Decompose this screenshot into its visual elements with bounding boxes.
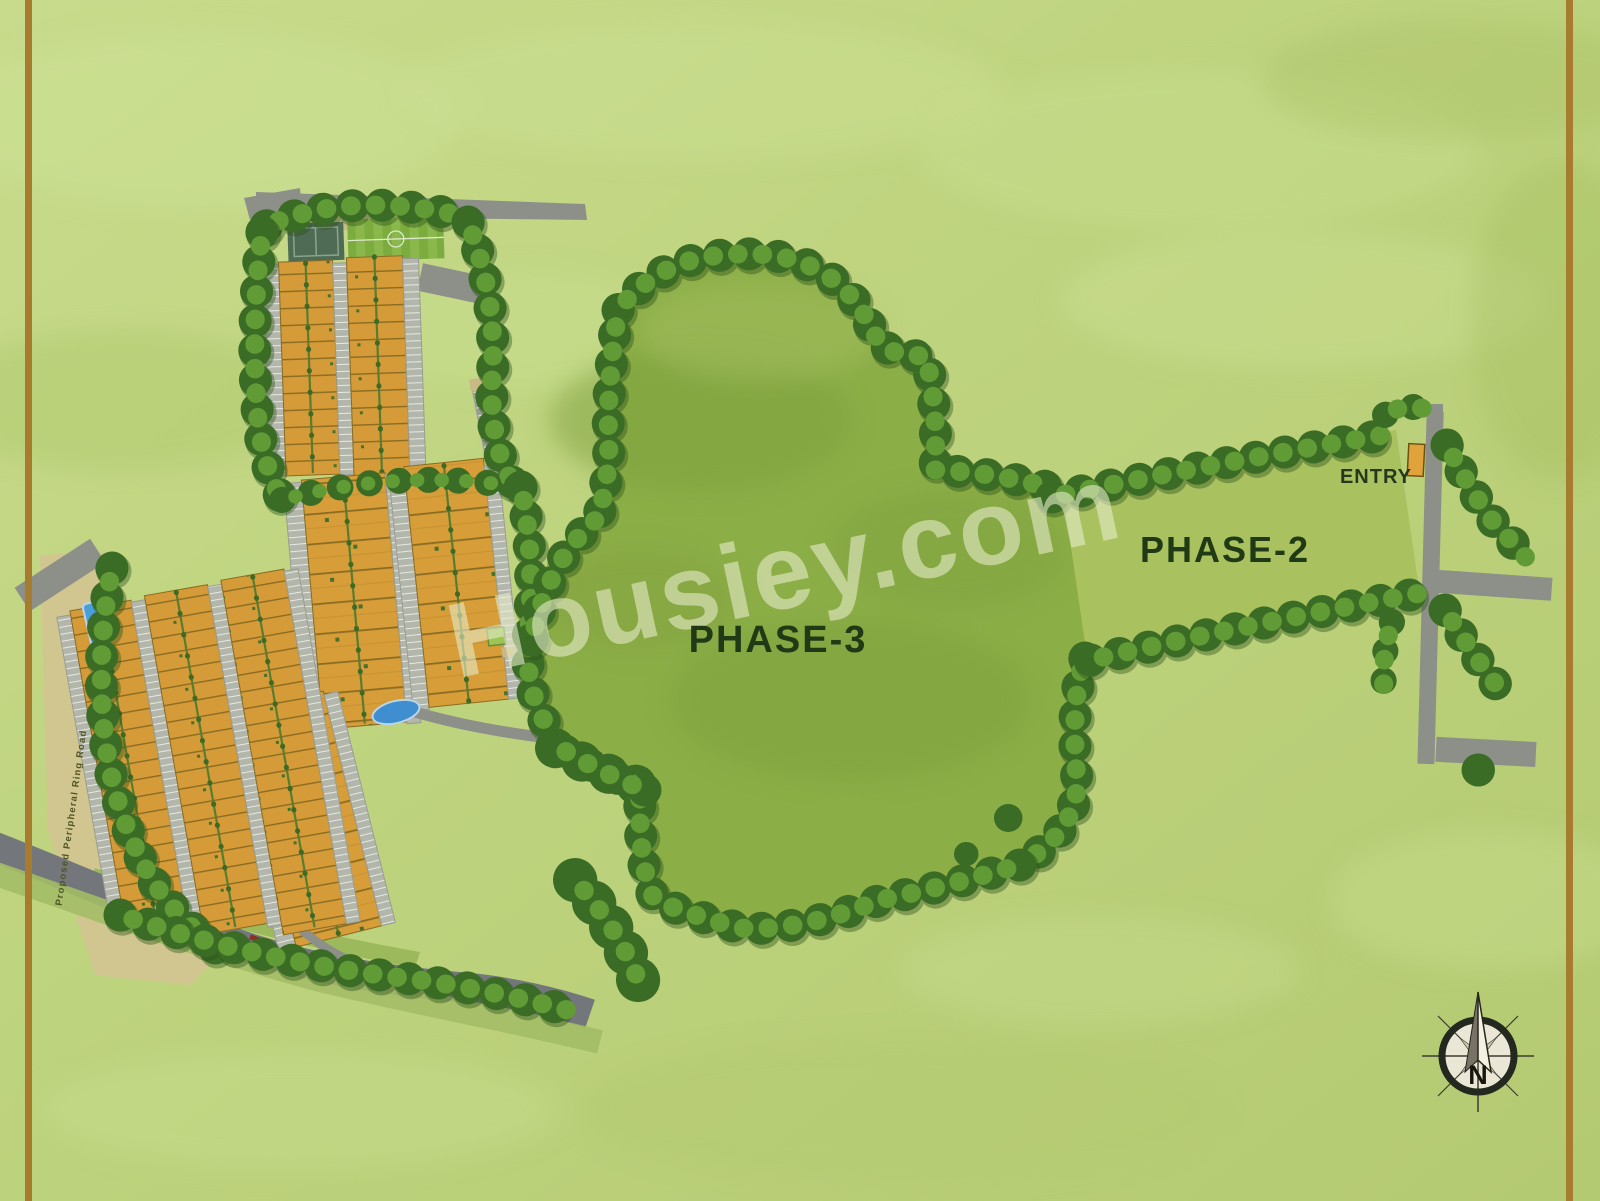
frame-line-left [25,0,32,1201]
compass-north-label: N [1468,1060,1488,1090]
site-plan-image: Proposed Peripheral Ring Road Housiey.co… [0,0,1600,1201]
phase-3-label: PHASE-3 [689,619,868,661]
phase-2-label: PHASE-2 [1140,529,1310,570]
frame-line-right [1566,0,1573,1201]
entry-label: ENTRY [1340,466,1412,488]
